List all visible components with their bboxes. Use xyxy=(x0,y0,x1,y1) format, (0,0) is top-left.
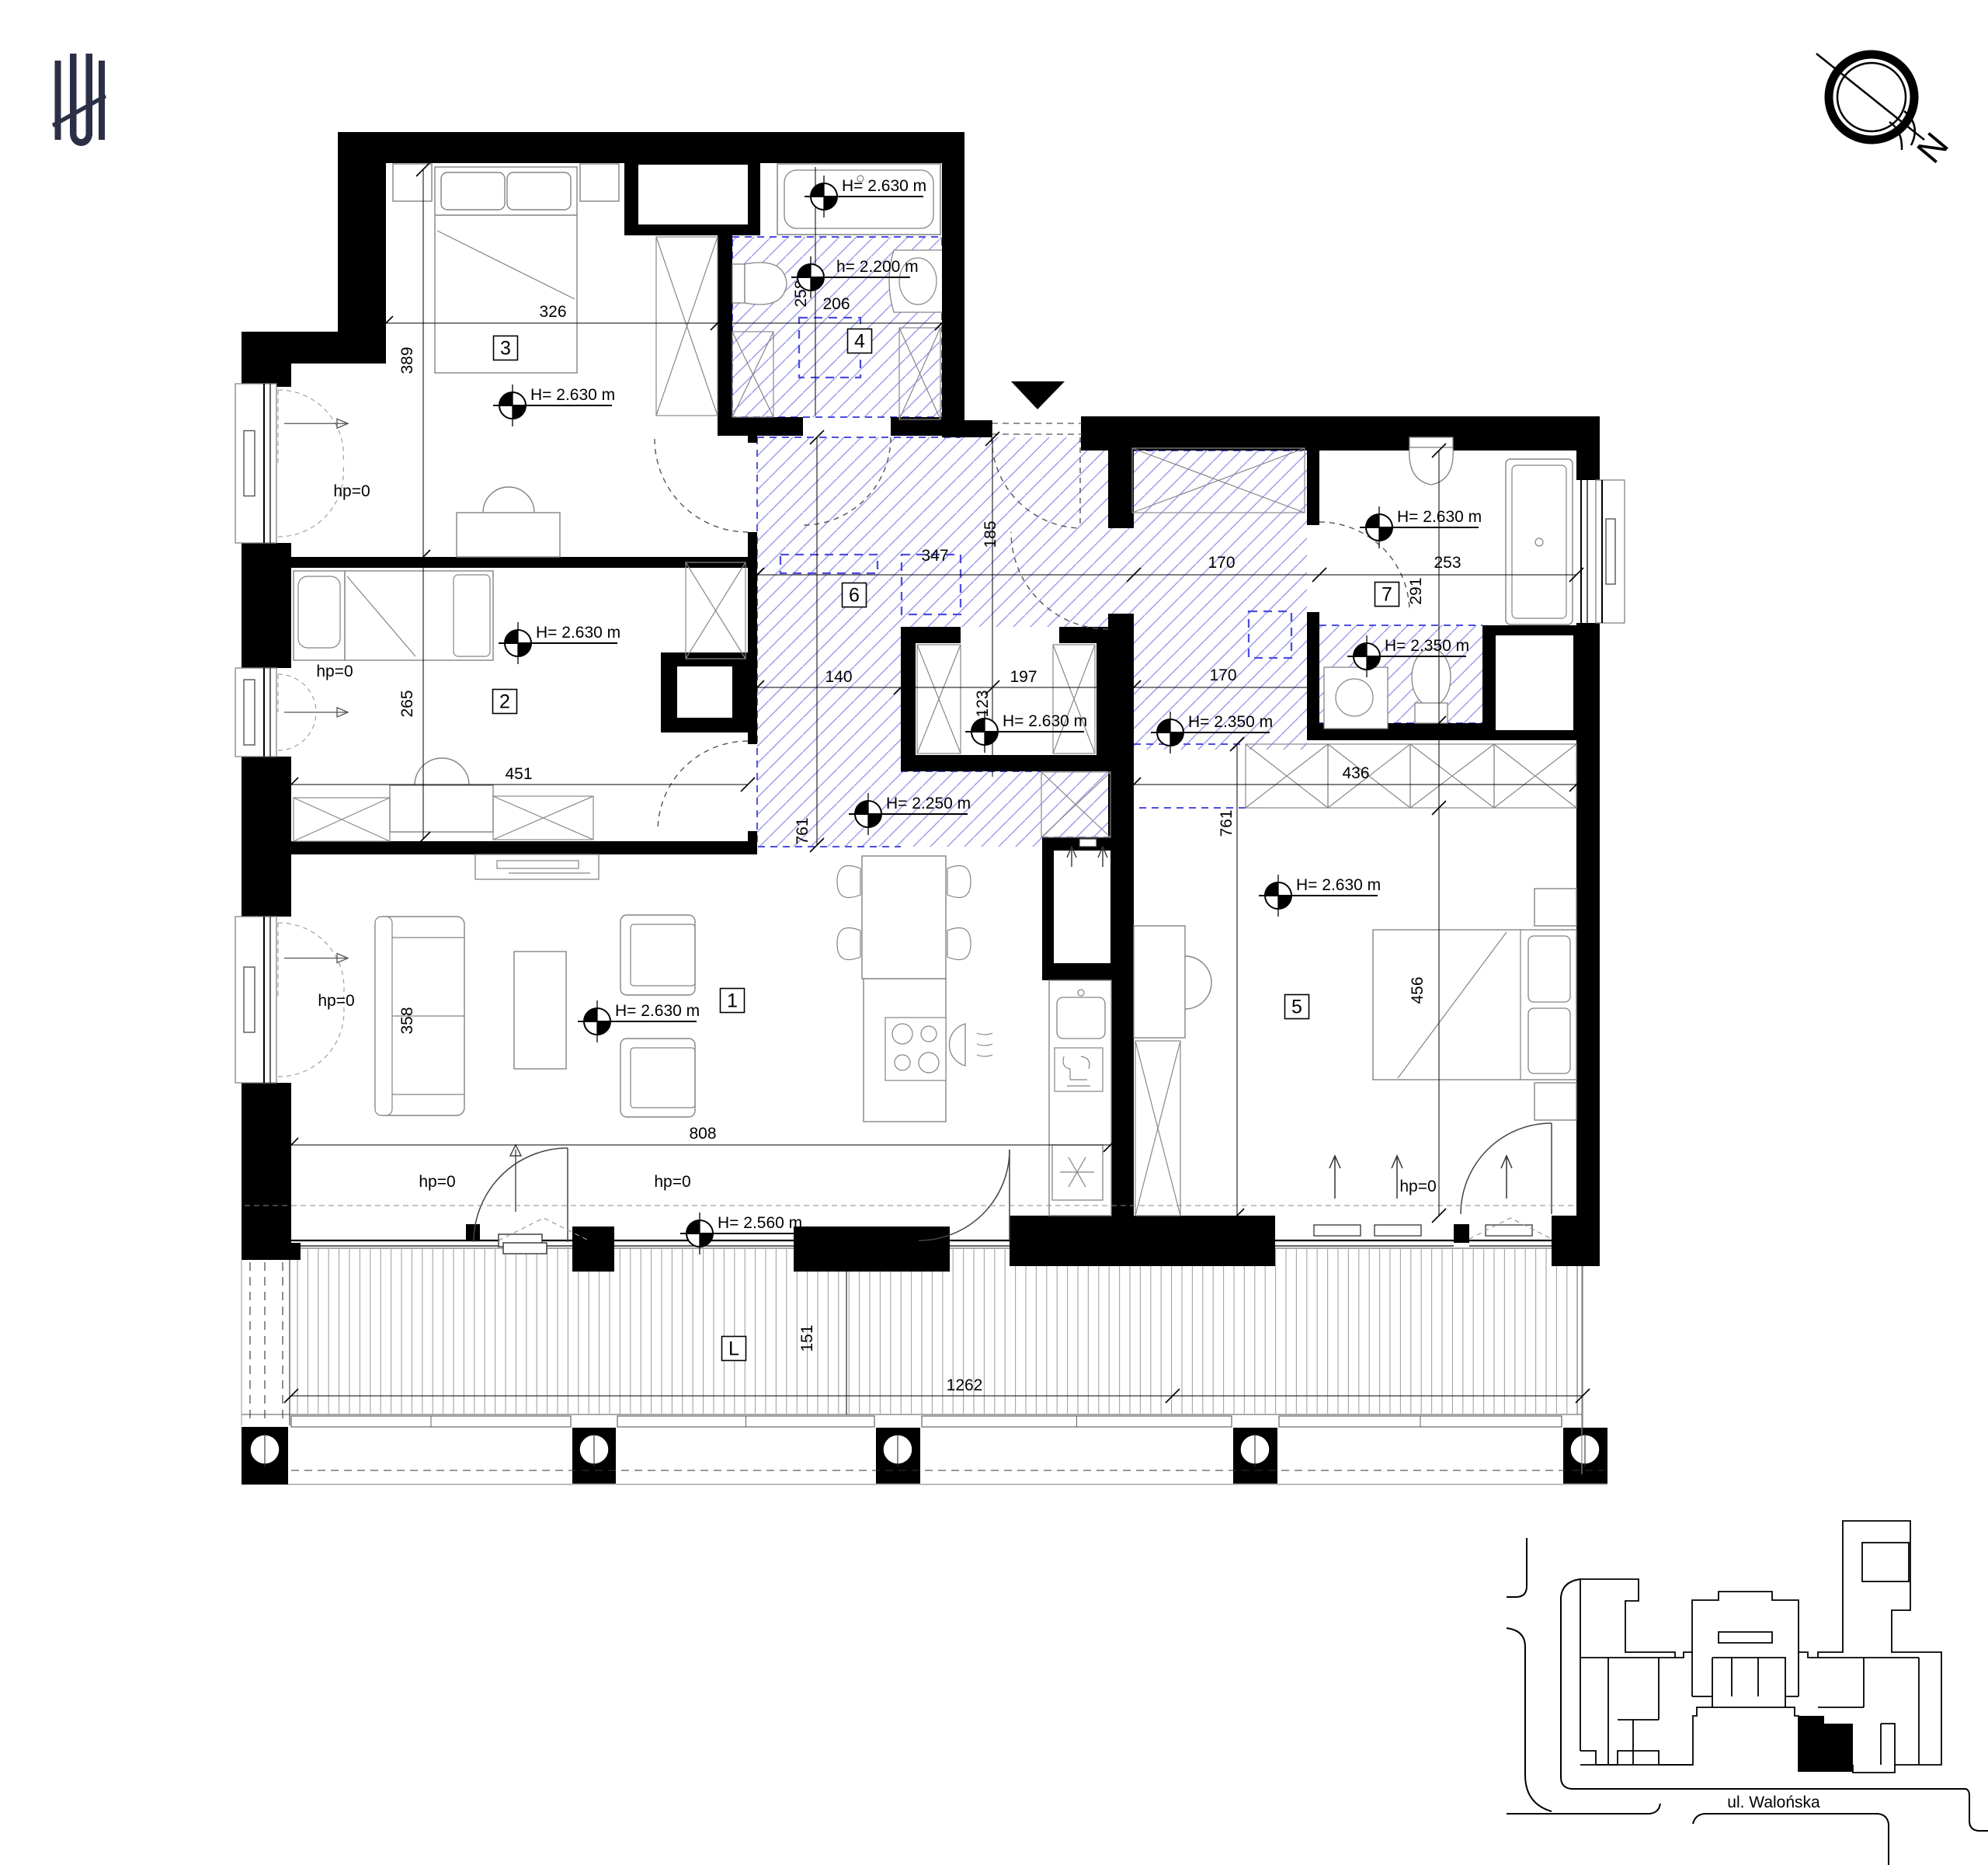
svg-text:hp=0: hp=0 xyxy=(318,992,354,1010)
svg-text:761: 761 xyxy=(794,817,812,844)
svg-text:291: 291 xyxy=(1407,577,1425,604)
svg-text:123: 123 xyxy=(974,690,992,717)
svg-text:5: 5 xyxy=(1291,997,1302,1018)
svg-text:3: 3 xyxy=(500,338,511,360)
svg-text:H= 2.630 m: H= 2.630 m xyxy=(842,177,926,195)
svg-text:140: 140 xyxy=(825,668,852,686)
svg-text:hp=0: hp=0 xyxy=(654,1173,690,1191)
svg-text:H= 2.630 m: H= 2.630 m xyxy=(536,624,620,642)
svg-text:326: 326 xyxy=(539,303,566,321)
svg-text:H= 2.630 m: H= 2.630 m xyxy=(615,1002,700,1020)
svg-text:451: 451 xyxy=(505,765,532,783)
svg-text:H= 2.250 m: H= 2.250 m xyxy=(886,795,971,812)
svg-text:456: 456 xyxy=(1409,976,1427,1004)
svg-text:170: 170 xyxy=(1209,666,1236,684)
svg-text:hp=0: hp=0 xyxy=(419,1173,455,1191)
svg-text:358: 358 xyxy=(398,1007,416,1034)
svg-text:808: 808 xyxy=(689,1125,716,1143)
svg-text:197: 197 xyxy=(1010,668,1037,686)
svg-text:hp=0: hp=0 xyxy=(1399,1178,1436,1195)
svg-text:1262: 1262 xyxy=(947,1376,983,1394)
svg-text:151: 151 xyxy=(798,1324,816,1352)
svg-text:H= 2.630 m: H= 2.630 m xyxy=(1296,876,1381,894)
svg-text:4: 4 xyxy=(854,331,865,353)
svg-text:389: 389 xyxy=(398,346,416,374)
svg-text:170: 170 xyxy=(1208,554,1235,572)
svg-text:2: 2 xyxy=(499,691,510,713)
svg-text:436: 436 xyxy=(1342,764,1369,782)
svg-text:761: 761 xyxy=(1218,809,1236,837)
svg-text:253: 253 xyxy=(1434,554,1461,572)
svg-text:7: 7 xyxy=(1382,584,1392,606)
svg-text:hp=0: hp=0 xyxy=(333,482,370,500)
svg-text:265: 265 xyxy=(398,690,416,717)
svg-text:H= 2.350 m: H= 2.350 m xyxy=(1188,713,1273,731)
svg-text:H= 2.630 m: H= 2.630 m xyxy=(1003,712,1087,730)
svg-text:H= 2.560 m: H= 2.560 m xyxy=(718,1214,802,1232)
svg-text:H= 2.630 m: H= 2.630 m xyxy=(530,386,615,404)
svg-text:347: 347 xyxy=(921,547,948,565)
svg-text:H= 2.630 m: H= 2.630 m xyxy=(1397,508,1482,526)
svg-text:L: L xyxy=(728,1338,739,1360)
svg-text:H= 2.350 m: H= 2.350 m xyxy=(1385,637,1469,655)
svg-text:185: 185 xyxy=(982,520,999,548)
svg-text:hp=0: hp=0 xyxy=(316,663,353,680)
svg-text:206: 206 xyxy=(822,295,850,313)
svg-text:6: 6 xyxy=(849,585,860,607)
svg-text:1: 1 xyxy=(727,990,738,1012)
svg-text:h= 2.200 m: h= 2.200 m xyxy=(836,258,919,276)
svg-text:ul. Walońska: ul. Walońska xyxy=(1727,1794,1820,1811)
